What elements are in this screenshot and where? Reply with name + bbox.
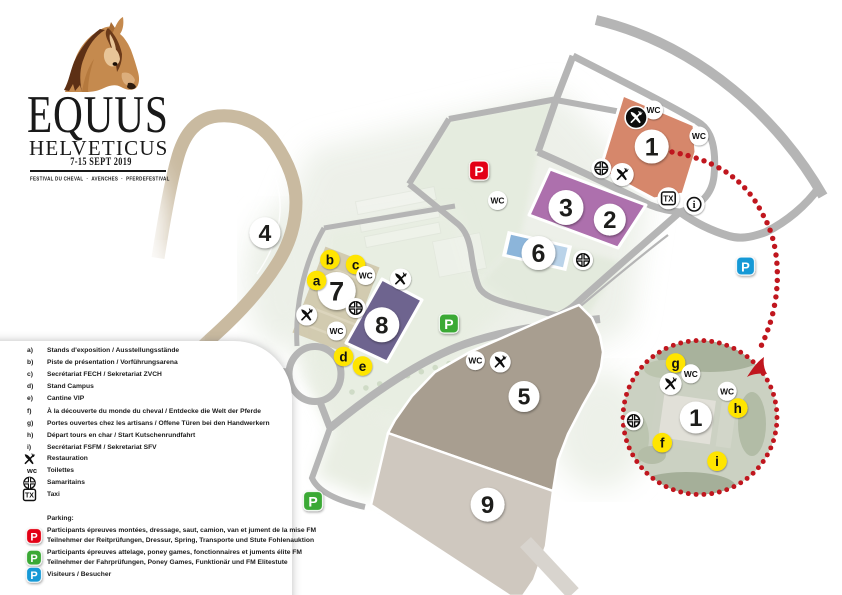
svg-text:P: P (30, 570, 37, 582)
svg-text:P: P (30, 553, 37, 565)
svg-text:P: P (30, 532, 37, 544)
svg-text:TX: TX (25, 493, 34, 500)
